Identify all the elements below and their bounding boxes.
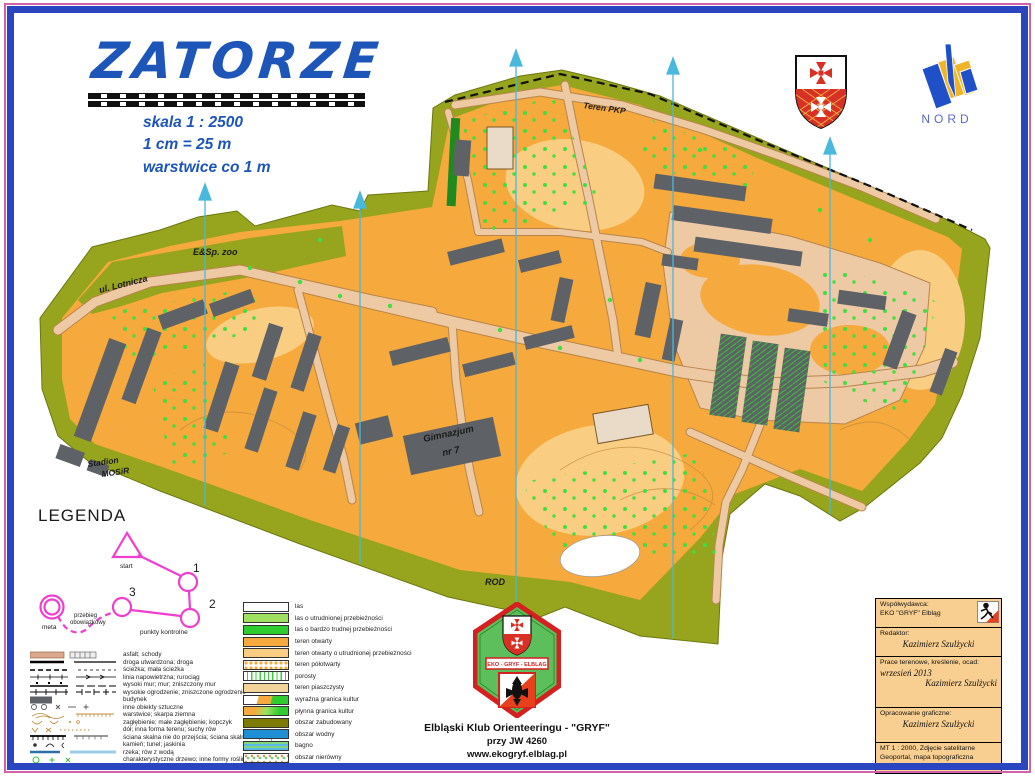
- badge-text: EKO - GRYF - ELBLAG: [487, 662, 546, 668]
- credits-fieldwork-label: Prace terenowe, kreślenie, ocad:: [880, 659, 997, 668]
- scale-block: skala 1 : 2500 1 cm = 25 m warstwice co …: [143, 112, 271, 179]
- color-row: wyraźna granica kultur: [243, 694, 443, 706]
- course-start-label: start: [120, 563, 133, 570]
- credits-sources-row: MT 1 : 2000, Zdjęcie satelitarne Geoport…: [876, 742, 1001, 773]
- legend-label: rzeka; rów z wodą: [123, 749, 174, 756]
- legend-label: ścieżka; mała ścieżka: [123, 666, 184, 673]
- color-label: las o utrudnionej przebieżności: [295, 615, 383, 622]
- swatch-plynna-granica: [243, 706, 289, 716]
- nord-label: NORD: [908, 112, 986, 126]
- swatch-teren-otwarty-utrudniony: [243, 648, 289, 658]
- swatch-teren-polotwarty: [243, 660, 289, 670]
- course-num2: 2: [209, 597, 216, 611]
- legend-label: inne obiekty sztuczne: [123, 704, 183, 711]
- credits-source-line2: Geoportal, mapa topograficzna: [880, 754, 997, 763]
- scale-line-1: skala 1 : 2500: [143, 112, 271, 134]
- swatch-zabudowany: [243, 718, 289, 728]
- scale-line-3: warstwice co 1 m: [143, 157, 271, 179]
- color-row: las o bardzo trudnej przebieżności: [243, 624, 443, 636]
- swatch-teren-otwarty: [243, 637, 289, 647]
- course-legend: start 1 2 3 przebieg obowiązkowy meta pu…: [28, 528, 228, 643]
- color-label: las: [295, 603, 303, 610]
- color-row: las: [243, 601, 443, 613]
- color-label: porosty: [295, 673, 316, 680]
- color-row: teren piaszczysty: [243, 682, 443, 694]
- legend-label: wysoki mur; mur; zniszczony mur: [123, 681, 216, 688]
- credits-fieldwork-name: Kazimierz Szulżycki: [880, 678, 997, 688]
- legend-label: linia napowietrzna; rurociąg: [123, 674, 200, 681]
- course-route-label-1: przebieg: [74, 613, 97, 619]
- club-unit: przy JW 4260: [387, 736, 647, 747]
- railroad-divider-2: [88, 101, 365, 107]
- course-num1: 1: [193, 561, 200, 575]
- runner-icon: [977, 601, 999, 623]
- poster: Teren PKP E&Sp. zoo ul. Lotnicza Stadion…: [0, 0, 1035, 776]
- credits-graphics-name: Kazimierz Szulżycki: [880, 719, 997, 729]
- swatch-wodny: [243, 729, 289, 739]
- credits-fieldwork-date: wrzesień 2013: [880, 668, 997, 678]
- color-label: bagno: [295, 742, 313, 749]
- course-meta-label: meta: [42, 624, 57, 631]
- color-label: teren otwarty: [295, 638, 332, 645]
- color-row: porosty: [243, 671, 443, 683]
- swatch-bagno: [243, 741, 289, 751]
- color-label: obszar wodny: [295, 731, 334, 738]
- legend-label: kamień; tunel; jaskinia: [123, 741, 185, 748]
- course-legend-title: LEGENDA: [38, 506, 126, 526]
- legend-label: zagłębienie; małe zagłębienie; kopczyk: [123, 719, 232, 726]
- color-label: las o bardzo trudnej przebieżności: [295, 626, 392, 633]
- credits-graphics-label: Opracowanie graficzne:: [880, 710, 997, 719]
- legend-label: asfalt; schody: [123, 651, 162, 658]
- label-zoo: E&Sp. zoo: [193, 247, 238, 257]
- course-route-label-2: obowiązkowy: [70, 620, 106, 626]
- credits-publisher-row: Współwydawca: EKO "GRYF" Elbląg: [876, 599, 1001, 627]
- page-title: ZATORZE: [89, 36, 385, 86]
- club-name: Elbląski Klub Orienteeringu - "GRYF": [387, 722, 647, 734]
- color-row: teren otwarty o utrudnionej przebieżnośc…: [243, 647, 443, 659]
- club-info: Elbląski Klub Orienteeringu - "GRYF" prz…: [387, 722, 647, 760]
- swatch-piaszczysty: [243, 683, 289, 693]
- legend-label: wysokie ogrodzenie; zniszczone ogrodzeni…: [123, 689, 246, 696]
- elblag-coat-of-arms: [792, 52, 850, 132]
- color-label: wyraźna granica kultur: [295, 696, 359, 703]
- color-label: teren półotwarty: [295, 661, 340, 668]
- credits-editor-label: Redaktor:: [880, 630, 997, 639]
- color-row: teren półotwarty: [243, 659, 443, 671]
- club-website: www.ekogryf.elblag.pl: [387, 749, 647, 760]
- club-badge: EKO - GRYF - ELBLAG: [473, 602, 561, 718]
- swatch-las: [243, 602, 289, 612]
- credits-source-line1: MT 1 : 2000, Zdjęcie satelitarne: [880, 745, 997, 754]
- label-rod: ROD: [485, 577, 506, 587]
- course-num3: 3: [129, 585, 136, 599]
- color-row: płynna granica kultur: [243, 705, 443, 717]
- swatch-nierowny: [243, 753, 289, 763]
- legend-label: dół; inna forma terenu; suchy rów: [123, 726, 216, 733]
- railroad-divider: [88, 93, 365, 99]
- swatch-las-utrudniony: [243, 613, 289, 623]
- swatch-wyrazna-granica: [243, 695, 289, 705]
- credits-graphics-row: Opracowanie graficzne: Kazimierz Szulżyc…: [876, 707, 1001, 742]
- credits-editor-row: Redaktor: Kazimierz Szulżycki: [876, 627, 1001, 656]
- symbol-drzewo: [30, 756, 118, 764]
- scale-line-2: 1 cm = 25 m: [143, 134, 271, 156]
- color-row: las o utrudnionej przebieżności: [243, 613, 443, 625]
- legend-label: budynek: [123, 696, 147, 703]
- course-controls-label: punkty kontrolne: [140, 629, 188, 636]
- color-label: obszar zabudowany: [295, 719, 352, 726]
- color-row: teren otwarty: [243, 636, 443, 648]
- legend-label: warstwice; skarpa ziemna: [123, 711, 195, 718]
- legend-row: charakterystyczne drzewo; inne formy roś…: [30, 756, 242, 764]
- credits-editor-name: Kazimierz Szulżycki: [880, 639, 997, 649]
- nord-logo: [908, 42, 986, 112]
- color-label: obszar nierówny: [295, 754, 342, 761]
- swatch-porosty: [243, 671, 289, 681]
- color-label: teren otwarty o utrudnionej przebieżnośc…: [295, 650, 412, 657]
- line-legend: asfalt; schody droga utwardzona; droga ś…: [30, 651, 242, 764]
- credits-box: Współwydawca: EKO "GRYF" Elbląg Redaktor…: [875, 598, 1002, 774]
- legend-label: droga utwardzona; droga: [123, 659, 193, 666]
- credits-fieldwork-row: Prace terenowe, kreślenie, ocad: wrzesie…: [876, 656, 1001, 707]
- legend-label: charakterystyczne drzewo; inne formy roś…: [123, 756, 253, 763]
- swatch-las-trudny: [243, 625, 289, 635]
- color-label: płynna granica kultur: [295, 708, 354, 715]
- color-label: teren piaszczysty: [295, 684, 344, 691]
